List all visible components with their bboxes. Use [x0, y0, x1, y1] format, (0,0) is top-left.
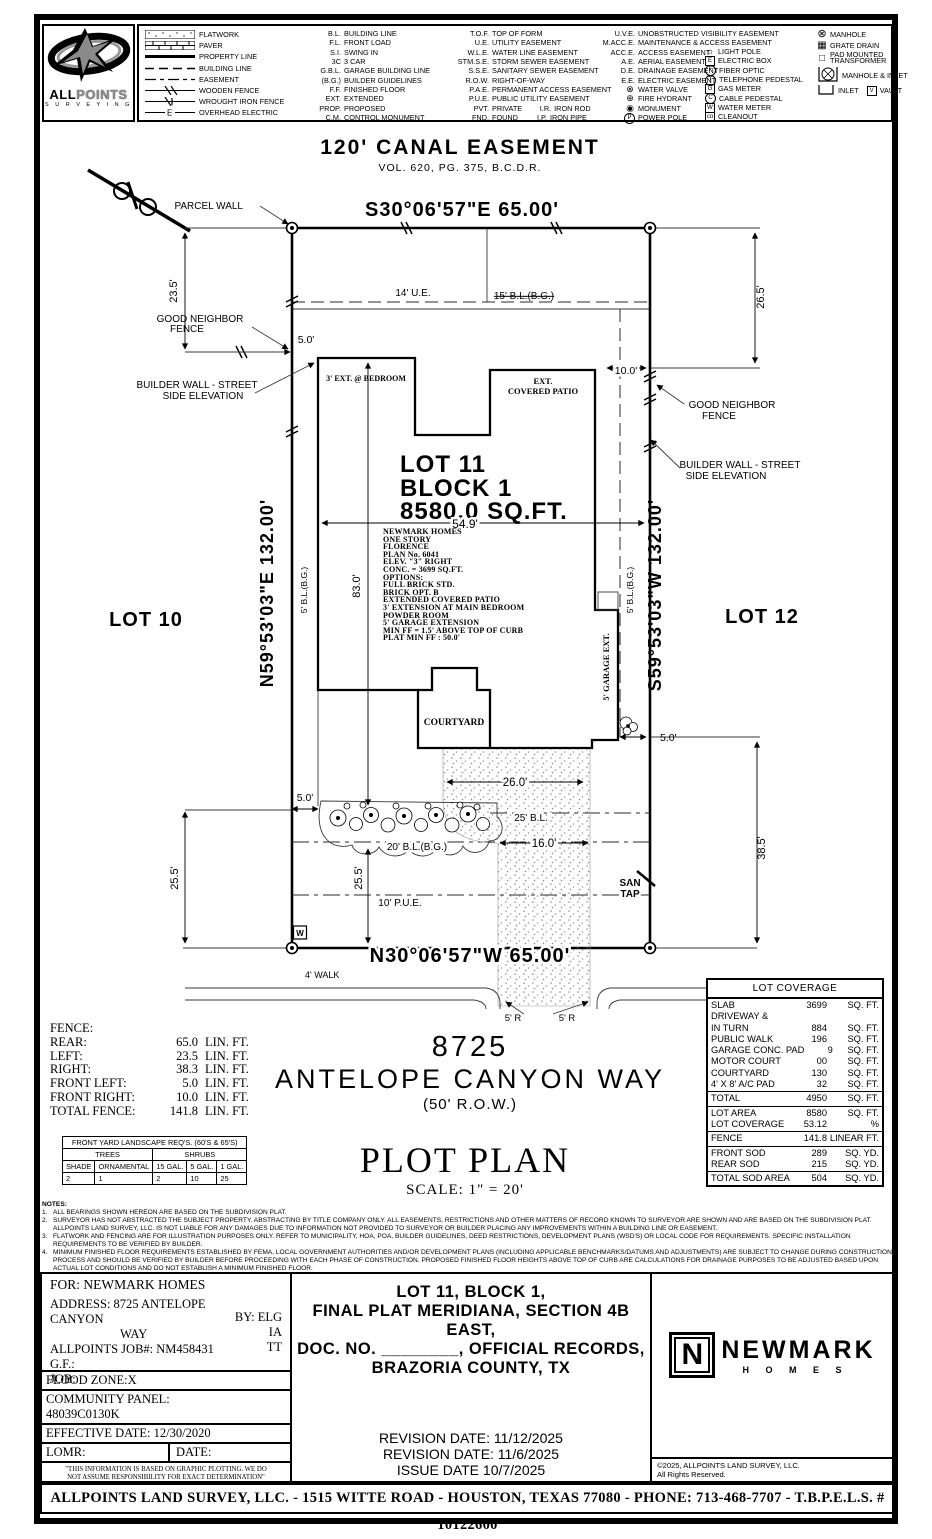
svg-text:N30°06'57"W 65.00': N30°06'57"W 65.00' — [370, 945, 571, 967]
coverage-row: REAR SOD215SQ. YD. — [711, 1159, 879, 1170]
svg-text:PLOT PLAN: PLOT PLAN — [360, 1140, 570, 1180]
coverage-row: LOT COVERAGE53.12% — [711, 1119, 879, 1130]
svg-text:S59°53'03"W 132.00': S59°53'03"W 132.00' — [645, 499, 665, 691]
house-description: NEWMARK HOMESONE STORYFLORENCEPLAN No. 6… — [383, 528, 583, 642]
svg-text:FENCE: FENCE — [702, 411, 736, 422]
coverage-row: FRONT SOD289SQ. YD. — [711, 1148, 879, 1159]
note: 3.FLATWORK AND FENCING ARE FOR ILLUSTRAT… — [42, 1233, 894, 1249]
address-line1: ADDRESS: 8725 ANTELOPE CANYON — [50, 1297, 230, 1327]
note: 2.SURVEYOR HAS NOT ABSTRACTED THE SUBJEC… — [42, 1217, 894, 1233]
svg-text:LOT 10: LOT 10 — [109, 609, 183, 631]
landscape-header-row: SHADEORNAMENTAL15 GAL.5 GAL.1 GAL. — [63, 1161, 247, 1173]
lomr-date-row: LOMR: DATE: — [42, 1444, 290, 1463]
initials-2: IA — [230, 1325, 282, 1340]
fence-row: FRONT RIGHT:10.0LIN. FT. — [50, 1091, 275, 1105]
newmark-homes: H O M E S — [715, 1365, 875, 1375]
landscape-value-row: 2121025 — [63, 1173, 247, 1185]
notes-title: NOTES: — [42, 1201, 894, 1209]
svg-text:10.0': 10.0' — [615, 365, 637, 377]
initials-3: TT — [230, 1340, 282, 1355]
street-walk-lines — [185, 988, 760, 1009]
revision-line: REVISION DATE: 11/6/2025 — [292, 1446, 650, 1462]
client-for-line: FOR: NEWMARK HOMES — [46, 1275, 286, 1297]
water-meter-symbol: W — [294, 926, 307, 939]
svg-text:3' EXT. @ BEDROOM: 3' EXT. @ BEDROOM — [326, 374, 406, 383]
svg-text:5.0': 5.0' — [297, 792, 314, 804]
legal-line: FINAL PLAT MERIDIANA, SECTION 4B EAST, — [292, 1302, 650, 1340]
fence-summary: FENCE: REAR:65.0LIN. FT. LEFT:23.5LIN. F… — [50, 1022, 275, 1119]
svg-text:120' CANAL EASEMENT: 120' CANAL EASEMENT — [320, 136, 600, 159]
svg-text:GOOD NEIGHBOR: GOOD NEIGHBOR — [689, 400, 776, 411]
title-block-right: N NEWMARK H O M E S ©2025, ALLPOINTS LAN… — [650, 1274, 893, 1481]
landscape-group-trees: TREES — [63, 1149, 153, 1161]
svg-text:14' U.E.: 14' U.E. — [395, 288, 430, 299]
address-line2: WAY — [50, 1327, 230, 1342]
effective-date: EFFECTIVE DATE: 12/30/2020 — [42, 1425, 290, 1444]
svg-text:83.0': 83.0' — [351, 574, 363, 598]
newmark-logo: N NEWMARK H O M E S — [652, 1332, 893, 1378]
svg-text:EXT.: EXT. — [534, 376, 553, 386]
svg-text:5.0': 5.0' — [660, 732, 677, 744]
date-label: DATE: — [170, 1444, 217, 1461]
title-block: FOR: NEWMARK HOMES ADDRESS: 8725 ANTELOP… — [40, 1272, 895, 1483]
fence-row: RIGHT:38.3LIN. FT. — [50, 1063, 275, 1077]
legal-line: BRAZORIA COUNTY, TX — [292, 1359, 650, 1378]
landscape-table: FRONT YARD LANDSCAPE REQ'S. (60'S & 65'S… — [62, 1136, 247, 1185]
svg-text:20' B.L.(B.G.): 20' B.L.(B.G.) — [387, 842, 447, 853]
revision-dates: REVISION DATE: 11/12/2025REVISION DATE: … — [292, 1430, 650, 1478]
coverage-row: MOTOR COURT00SQ. FT. — [711, 1056, 879, 1067]
notes: NOTES: 1.ALL BEARINGS SHOWN HEREON ARE B… — [42, 1201, 894, 1273]
coverage-lot-area: LOT AREA8580SQ. FT.LOT COVERAGE53.12% — [708, 1106, 882, 1132]
revision-line: REVISION DATE: 11/12/2025 — [292, 1430, 650, 1446]
svg-text:FENCE: FENCE — [170, 324, 204, 335]
note: 4.MINIMUM FINISHED FLOOR REQUIREMENTS ES… — [42, 1249, 894, 1273]
fence-row: LEFT:23.5LIN. FT. — [50, 1050, 275, 1064]
coverage-row: GARAGE CONC. PAD9SQ. FT. — [711, 1045, 879, 1056]
lot-coverage-title: LOT COVERAGE — [708, 980, 882, 998]
svg-text:PARCEL WALL: PARCEL WALL — [174, 201, 243, 212]
fence-row: TOTAL FENCE:141.8LIN. FT. — [50, 1105, 275, 1119]
svg-text:ANTELOPE CANYON WAY: ANTELOPE CANYON WAY — [275, 1064, 665, 1094]
newmark-n-icon: N — [669, 1332, 715, 1378]
svg-text:26.0': 26.0' — [503, 777, 528, 789]
coverage-items: SLAB3699SQ. FT.DRIVEWAY &IN TURN884SQ. F… — [708, 998, 882, 1091]
svg-text:4' WALK: 4' WALK — [305, 970, 339, 980]
svg-text:SIDE ELEVATION: SIDE ELEVATION — [686, 471, 767, 482]
gf-label: G.F.: — [50, 1357, 230, 1372]
svg-text:W: W — [296, 929, 304, 938]
notes-list: 1.ALL BEARINGS SHOWN HEREON ARE BASED ON… — [42, 1209, 894, 1273]
lot-coverage-table: LOT COVERAGE SLAB3699SQ. FT.DRIVEWAY &IN… — [706, 978, 884, 1187]
coverage-row: TOTAL SOD AREA504SQ. YD. — [711, 1173, 879, 1184]
coverage-row: FENCE141.8LINEAR FT. — [711, 1133, 879, 1144]
svg-text:26.5': 26.5' — [755, 285, 767, 309]
newmark-name: NEWMARK — [721, 1336, 875, 1365]
svg-text:BUILDER WALL - STREET: BUILDER WALL - STREET — [680, 460, 801, 471]
coverage-sod: FRONT SOD289SQ. YD.REAR SOD215SQ. YD. — [708, 1146, 882, 1172]
community-panel: COMMUNITY PANEL: 48039C0130K — [42, 1391, 290, 1425]
svg-text:COVERED PATIO: COVERED PATIO — [508, 386, 579, 396]
svg-text:25.5': 25.5' — [169, 866, 181, 890]
by-initials: BY: ELG — [230, 1310, 282, 1325]
fence-title: FENCE: — [50, 1022, 275, 1036]
fence-row: FRONT LEFT:5.0LIN. FT. — [50, 1077, 275, 1091]
svg-text:SCALE: 1" = 20': SCALE: 1" = 20' — [406, 1182, 524, 1198]
coverage-row: IN TURN884SQ. FT. — [711, 1023, 879, 1034]
svg-text:5' R: 5' R — [559, 1013, 576, 1024]
landscape-title: FRONT YARD LANDSCAPE REQ'S. (60'S & 65'S… — [63, 1137, 247, 1149]
legal-line: DOC. NO. ________, OFFICIAL RECORDS, — [292, 1340, 650, 1359]
coverage-row: 4' X 8' A/C PAD32SQ. FT. — [711, 1079, 879, 1090]
title-block-left: FOR: NEWMARK HOMES ADDRESS: 8725 ANTELOP… — [42, 1274, 292, 1481]
ac-pad — [598, 592, 618, 610]
svg-text:SIDE ELEVATION: SIDE ELEVATION — [163, 391, 244, 402]
svg-text:5' GARAGE EXT.: 5' GARAGE EXT. — [601, 633, 611, 700]
svg-text:S30°06'57"E 65.00': S30°06'57"E 65.00' — [365, 199, 559, 221]
coverage-row: COURTYARD130SQ. FT. — [711, 1068, 879, 1079]
house-description-line: PLAT MIN FF : 50.0' — [383, 634, 583, 642]
fence-rows: REAR:65.0LIN. FT. LEFT:23.5LIN. FT. RIGH… — [50, 1036, 275, 1119]
note: 1.ALL BEARINGS SHOWN HEREON ARE BASED ON… — [42, 1209, 894, 1217]
svg-text:8580.0 SQ.FT.: 8580.0 SQ.FT. — [400, 498, 568, 525]
svg-text:16.0': 16.0' — [532, 838, 557, 850]
svg-text:5' B.L.(B.G.): 5' B.L.(B.G.) — [625, 567, 635, 614]
svg-text:8725: 8725 — [432, 1031, 509, 1063]
svg-text:25' B.L.: 25' B.L. — [514, 813, 548, 824]
svg-text:25.5': 25.5' — [353, 866, 365, 890]
title-block-middle: LOT 11, BLOCK 1,FINAL PLAT MERIDIANA, SE… — [292, 1274, 650, 1481]
svg-text:VOL. 620, PG. 375, B.C.D.R.: VOL. 620, PG. 375, B.C.D.R. — [379, 162, 542, 174]
fence-row: REAR:65.0LIN. FT. — [50, 1036, 275, 1050]
svg-text:SAN: SAN — [619, 878, 640, 889]
client-box: FOR: NEWMARK HOMES ADDRESS: 8725 ANTELOP… — [42, 1274, 290, 1372]
coverage-row: TOTAL4950SQ. FT. — [711, 1093, 879, 1104]
svg-text:LOT 12: LOT 12 — [725, 606, 799, 628]
svg-text:15' B.L.(B.G.): 15' B.L.(B.G.) — [494, 291, 554, 302]
legal-line: LOT 11, BLOCK 1, — [292, 1283, 650, 1302]
svg-text:TAP: TAP — [620, 889, 640, 900]
job-number: ALLPOINTS JOB#: NM458431 — [50, 1342, 230, 1357]
copyright: ©2025, ALLPOINTS LAND SURVEY, LLC. All R… — [652, 1457, 893, 1481]
svg-text:LOT 11: LOT 11 — [400, 451, 486, 478]
landscape-group-shrubs: SHRUBS — [153, 1149, 247, 1161]
footer-bar: ALLPOINTS LAND SURVEY, LLC. - 1515 WITTE… — [40, 1483, 895, 1514]
svg-text:(50' R.O.W.): (50' R.O.W.) — [423, 1096, 517, 1113]
disclaimer: "THIS INFORMATION IS BASED ON GRAPHIC PL… — [42, 1463, 290, 1483]
svg-text:10' P.U.E.: 10' P.U.E. — [378, 898, 421, 909]
plot-plan-sheet: { "logo": {"brand_all": "ALL", "brand_po… — [0, 0, 932, 1536]
coverage-fence: FENCE141.8LINEAR FT. — [708, 1131, 882, 1145]
coverage-row: DRIVEWAY & — [711, 1011, 879, 1022]
legal-description: LOT 11, BLOCK 1,FINAL PLAT MERIDIANA, SE… — [292, 1274, 650, 1378]
svg-text:23.5': 23.5' — [168, 279, 180, 303]
svg-text:N59°53'03"E 132.00': N59°53'03"E 132.00' — [257, 499, 277, 687]
svg-text:BUILDER WALL - STREET: BUILDER WALL - STREET — [137, 380, 258, 391]
revision-line: ISSUE DATE 10/7/2025 — [292, 1462, 650, 1478]
shrub-at-garage — [620, 717, 638, 735]
coverage-total: TOTAL4950SQ. FT. — [708, 1091, 882, 1105]
svg-text:38.5': 38.5' — [756, 836, 768, 860]
coverage-row: PUBLIC WALK196SQ. FT. — [711, 1034, 879, 1045]
lomr-label: LOMR: — [42, 1444, 170, 1461]
coverage-row: SLAB3699SQ. FT. — [711, 1000, 879, 1011]
svg-text:5.0': 5.0' — [298, 334, 315, 346]
coverage-row: LOT AREA8580SQ. FT. — [711, 1108, 879, 1119]
svg-text:COURTYARD: COURTYARD — [424, 718, 485, 728]
svg-text:5' B.L.(B.G.): 5' B.L.(B.G.) — [299, 567, 309, 614]
coverage-sod-total: TOTAL SOD AREA504SQ. YD. — [708, 1171, 882, 1185]
svg-text:5' R: 5' R — [505, 1013, 522, 1024]
